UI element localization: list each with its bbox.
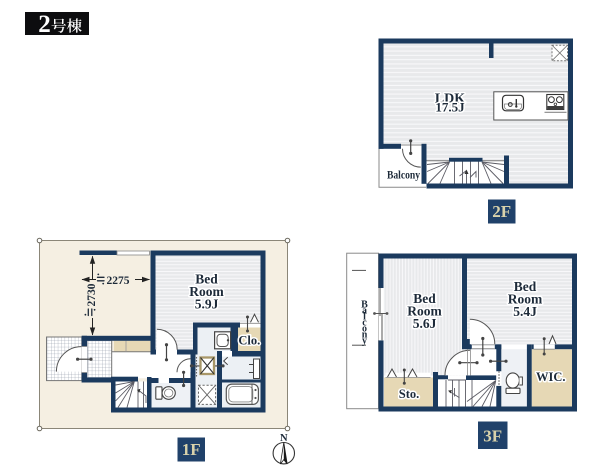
svg-text:2730: 2730 <box>86 283 98 306</box>
svg-text:WIC.: WIC. <box>536 370 566 384</box>
svg-text:5.9J: 5.9J <box>195 297 219 312</box>
svg-text:2275: 2275 <box>107 275 130 287</box>
svg-text:17.5J: 17.5J <box>435 100 465 115</box>
svg-text:Balcony: Balcony <box>387 168 420 182</box>
svg-text:2: 2 <box>38 11 51 38</box>
svg-text:2F: 2F <box>492 202 511 221</box>
svg-text:Sto.: Sto. <box>399 387 420 401</box>
svg-text:5.4J: 5.4J <box>513 304 537 319</box>
svg-text:3F: 3F <box>483 427 502 446</box>
svg-text:Clo.: Clo. <box>238 334 260 348</box>
svg-text:1F: 1F <box>182 440 201 459</box>
svg-text:5.6J: 5.6J <box>413 316 437 331</box>
